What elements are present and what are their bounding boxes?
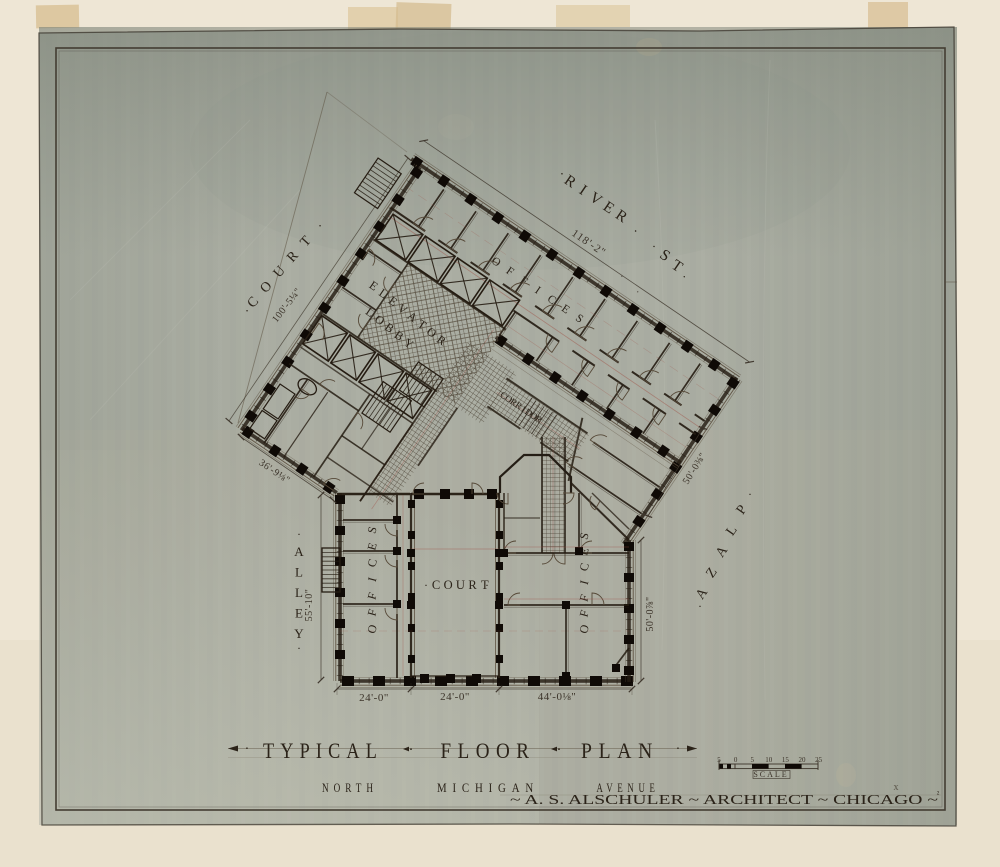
svg-text:·: ·: [297, 641, 301, 655]
svg-text:E: E: [295, 606, 303, 621]
svg-text:·: ·: [748, 487, 752, 501]
svg-text:C: C: [432, 578, 440, 592]
svg-text:·: ·: [557, 742, 562, 758]
svg-text:Y: Y: [294, 626, 304, 641]
svg-text:10: 10: [765, 756, 773, 764]
svg-text:·: ·: [245, 303, 249, 318]
svg-text:R: R: [468, 578, 477, 592]
svg-text:TYPICAL: TYPICAL: [263, 738, 383, 763]
svg-text:24'-0": 24'-0": [440, 691, 470, 703]
svg-text:15: 15: [782, 756, 790, 764]
svg-text:25: 25: [815, 756, 823, 764]
svg-text:·: ·: [245, 742, 250, 757]
svg-text:·: ·: [318, 218, 322, 233]
svg-text:44'-0⅛": 44'-0⅛": [538, 691, 576, 703]
svg-text:5: 5: [750, 756, 754, 764]
svg-text:U: U: [456, 578, 465, 592]
svg-text:NORTH: NORTH: [322, 780, 378, 795]
svg-text:²: ²: [937, 789, 940, 799]
svg-text:FLOOR: FLOOR: [441, 738, 536, 763]
svg-text:x: x: [894, 782, 899, 793]
svg-text:·: ·: [485, 578, 489, 592]
svg-text:0: 0: [734, 756, 738, 764]
svg-text:55'-10": 55'-10": [304, 589, 315, 622]
svg-text:A: A: [294, 544, 304, 559]
svg-text:SCALE: SCALE: [753, 770, 788, 779]
svg-text:·: ·: [409, 742, 414, 758]
svg-text:·: ·: [297, 527, 301, 541]
svg-text:~ A. S. ALSCHULER ~ ARCHITECT: ~ A. S. ALSCHULER ~ ARCHITECT ~ CHICAGO …: [510, 792, 938, 807]
svg-text:·: ·: [698, 599, 702, 613]
svg-text:L: L: [295, 565, 303, 580]
svg-text:·: ·: [424, 578, 428, 592]
svg-text:L: L: [295, 585, 303, 600]
svg-text:O: O: [444, 578, 453, 592]
svg-text:·: ·: [676, 742, 681, 757]
svg-text:24'-0": 24'-0": [359, 692, 389, 704]
svg-text:20: 20: [799, 756, 807, 764]
svg-text:PLAN: PLAN: [581, 738, 659, 763]
svg-text:50'-0⅞": 50'-0⅞": [645, 596, 656, 631]
